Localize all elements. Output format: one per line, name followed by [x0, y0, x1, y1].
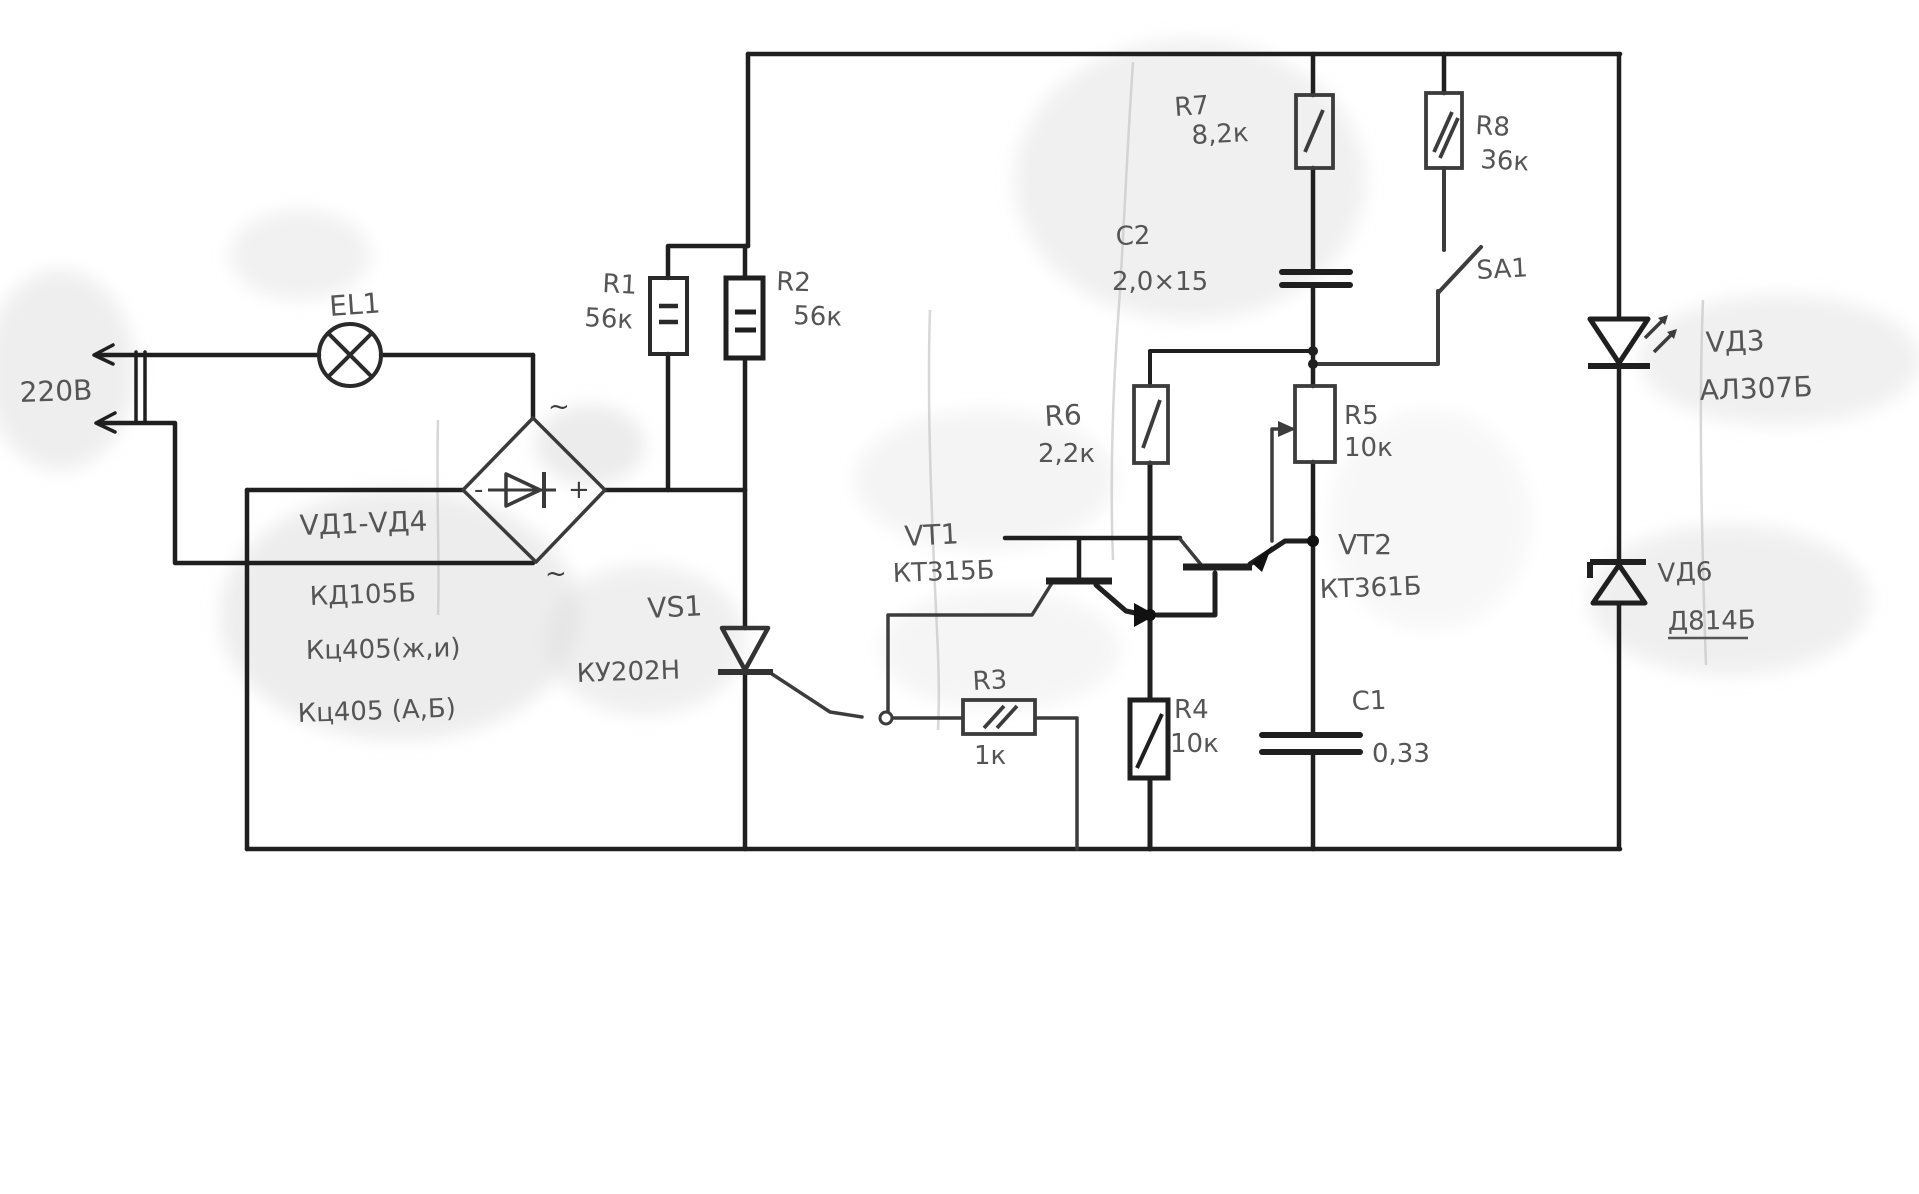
vd3-type-label: АЛ307Б — [1699, 370, 1813, 407]
bridge-ref-label: VД1-VД4 — [299, 505, 428, 542]
r8-ref-label: R8 — [1475, 111, 1511, 143]
r5-value-label: 10к — [1344, 433, 1393, 463]
r6-ref-label: R6 — [1044, 398, 1083, 433]
vs1-type-label: КУ202Н — [576, 655, 680, 689]
r7-value-label: 8,2к — [1191, 118, 1250, 151]
vt1-ref-label: VT1 — [904, 517, 960, 553]
gate-node — [880, 712, 892, 724]
paper-texture — [0, 40, 1919, 740]
vt2-type-label: КТ361Б — [1319, 571, 1422, 605]
lamp-ref-label: EL1 — [328, 286, 381, 322]
resistor-r5-symbol — [1295, 386, 1335, 462]
c1-ref-label: C1 — [1351, 686, 1387, 717]
c2-value-label: 2,0×15 — [1112, 267, 1208, 297]
resistor-r4-symbol — [1130, 700, 1168, 778]
vt1-type-label: КТ315Б — [892, 555, 995, 589]
c1-value-label: 0,33 — [1372, 739, 1430, 769]
vt2-ref-label: VT2 — [1338, 528, 1392, 561]
lamp-symbol — [319, 324, 381, 386]
bridge-ac-top-label: ~ — [548, 392, 570, 422]
r1-value-label: 56к — [584, 303, 634, 336]
junction-dot-timing — [1307, 535, 1319, 547]
r3-ref-label: R3 — [972, 665, 1008, 697]
circuit-schematic: 220В EL1 VД1-VД4 КД105Б Кц405(ж,и) Кц405… — [0, 0, 1919, 1194]
scanned-schematic-page: 220В EL1 VД1-VД4 КД105Б Кц405(ж,и) Кц405… — [0, 0, 1919, 1194]
r4-ref-label: R4 — [1174, 695, 1209, 725]
resistor-r6-symbol — [1134, 386, 1168, 463]
mains-voltage-label: 220В — [19, 373, 93, 409]
r2-value-label: 56к — [793, 301, 843, 333]
bridge-type1-label: КД105Б — [309, 578, 416, 612]
sa1-ref-label: SA1 — [1476, 253, 1529, 286]
r6-value-label: 2,2к — [1038, 439, 1095, 469]
bridge-type2-label: Кц405(ж,и) — [306, 633, 461, 666]
resistor-r8-symbol — [1426, 93, 1462, 168]
vd6-ref-label: VД6 — [1657, 557, 1713, 589]
r8-value-label: 36к — [1480, 145, 1530, 178]
bridge-plus-label: + — [568, 475, 590, 505]
r1-ref-label: R1 — [602, 269, 638, 301]
junction-dot-r6 — [1308, 346, 1318, 356]
vd3-ref-label: VД3 — [1705, 324, 1765, 359]
junction-dot-center — [1144, 609, 1156, 621]
c2-ref-label: C2 — [1115, 221, 1151, 252]
vs1-ref-label: VS1 — [647, 589, 703, 625]
bridge-ac-bottom-label: ~ — [545, 559, 567, 589]
r4-value-label: 10к — [1170, 729, 1219, 759]
r2-ref-label: R2 — [776, 267, 812, 298]
bridge-minus-label: - — [474, 475, 483, 505]
r5-ref-label: R5 — [1344, 401, 1379, 431]
bridge-type3-label: Кц405 (А,Б) — [297, 693, 456, 729]
junction-dot-sa1 — [1308, 359, 1318, 369]
r7-ref-label: R7 — [1173, 91, 1210, 123]
resistor-r2-symbol — [726, 278, 763, 358]
resistor-r1-symbol — [650, 278, 687, 354]
r3-value-label: 1к — [974, 741, 1006, 771]
vd6-type-label: Д814Б — [1668, 605, 1756, 637]
